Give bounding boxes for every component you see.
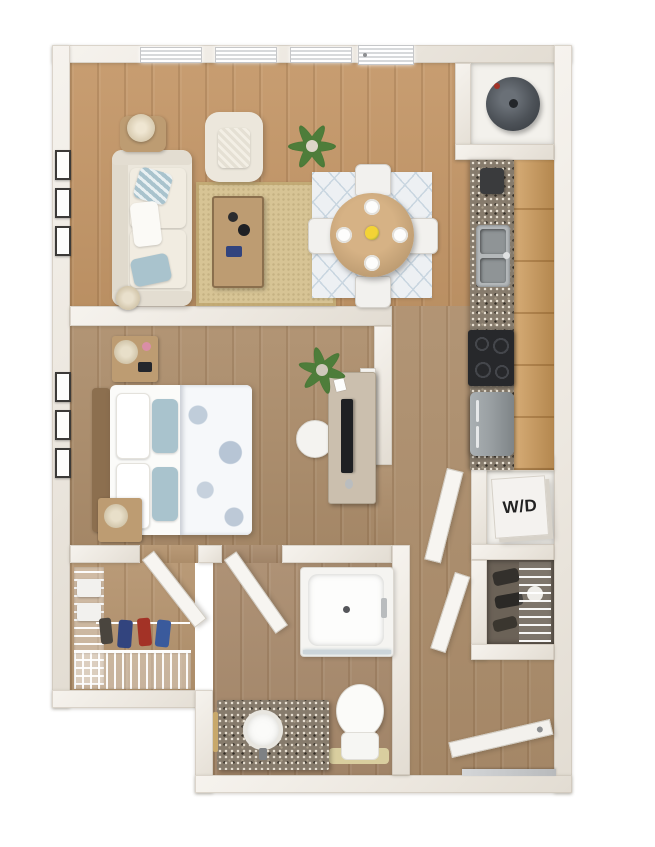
wall-bathroom-right xyxy=(392,545,410,775)
floor-lamp xyxy=(116,286,140,310)
stored-clothes-dark xyxy=(492,567,520,586)
bed-pillow-blue-1 xyxy=(152,399,178,453)
coffee-table-bowl xyxy=(228,212,238,222)
hanging-clothes-navy xyxy=(117,620,133,649)
coat-closet xyxy=(487,560,554,644)
centerpiece-flowers xyxy=(365,226,379,240)
vanity-towel xyxy=(213,712,218,752)
desk-mouse xyxy=(345,479,353,489)
refrigerator xyxy=(470,392,514,456)
nightstand-lamp xyxy=(114,340,138,364)
dining-table xyxy=(330,193,414,277)
wall-linen-bottom xyxy=(471,644,554,660)
fridge-handle xyxy=(476,400,479,422)
wall-bottom-closet xyxy=(52,690,213,708)
window-3 xyxy=(290,47,352,63)
kitchen-cabinets xyxy=(514,160,554,470)
nightstand-flowers xyxy=(142,342,151,351)
front-door-handle-icon xyxy=(536,726,543,733)
wall-art-living-2 xyxy=(55,188,71,218)
bed-pillow-blue-2 xyxy=(152,467,178,521)
wall-water-heater-bottom xyxy=(455,144,554,160)
armchair xyxy=(205,112,263,182)
hanging-clothes-blue xyxy=(155,619,172,647)
sofa-back xyxy=(112,150,128,306)
wall-bedroom-bottom-a xyxy=(70,545,140,563)
wall-art-bedroom-1 xyxy=(55,372,71,402)
shower xyxy=(300,567,394,657)
sofa xyxy=(112,150,192,306)
closet-shelf-bottom xyxy=(74,650,191,689)
sofa-throw-blanket xyxy=(129,200,162,247)
patio-door-handle-icon xyxy=(363,53,367,57)
bed-pillow-white-1 xyxy=(116,393,150,459)
vanity-sink xyxy=(243,710,283,750)
coffee-maker xyxy=(480,168,504,194)
dining-chair-north xyxy=(355,164,391,196)
coat-closet-wire-shelves xyxy=(519,562,551,642)
shower-glass xyxy=(303,650,391,654)
sink-faucet xyxy=(503,252,510,259)
patio-door xyxy=(358,45,414,65)
armchair-pillow xyxy=(218,128,250,168)
wall-right xyxy=(554,45,572,793)
place-setting-plate xyxy=(364,255,380,271)
wall-living-bedroom xyxy=(70,306,392,326)
toilet-base xyxy=(341,732,379,760)
closet-bin xyxy=(77,579,101,597)
washer-dryer-unit: W/D xyxy=(491,475,549,539)
wall-art-living-3 xyxy=(55,226,71,256)
coffee-table xyxy=(212,196,264,288)
fridge-handle xyxy=(476,426,479,448)
washer-dryer-label: W/D xyxy=(502,496,538,518)
bedroom-doorway xyxy=(374,465,392,545)
wall-bottom xyxy=(195,775,572,793)
vanity-faucet xyxy=(259,748,267,760)
living-room-plant xyxy=(288,122,336,170)
desk-monitor xyxy=(341,399,353,473)
wall-art-bedroom-2 xyxy=(55,410,71,440)
shower-drain xyxy=(343,606,350,613)
hanging-clothes-dark xyxy=(99,617,114,644)
nightstand-bottom xyxy=(98,498,142,542)
bathroom-vanity xyxy=(217,700,329,770)
place-setting-plate xyxy=(364,199,380,215)
hanging-clothes-red xyxy=(137,617,152,646)
toilet-lid xyxy=(336,684,384,738)
water-heater-pipe xyxy=(509,99,518,108)
water-heater xyxy=(486,77,540,131)
table-lamp xyxy=(127,114,155,142)
window-1 xyxy=(140,47,202,63)
bed-duvet xyxy=(180,385,252,535)
sofa-arm-top xyxy=(112,150,192,165)
sink-basin-top xyxy=(480,229,506,254)
plant-pot xyxy=(316,364,328,376)
plant-pot xyxy=(306,140,318,152)
coffee-table-vase xyxy=(238,224,250,236)
wall-art-living-1 xyxy=(55,150,71,180)
dining-chair-south xyxy=(355,276,391,308)
front-door-threshold xyxy=(462,769,556,776)
floor-plan-canvas: W/D xyxy=(0,0,655,847)
wall-bedroom-bottom-b xyxy=(198,545,222,563)
bedroom-plant xyxy=(296,344,348,396)
nightstand-lamp xyxy=(104,504,128,528)
wall-bedroom-bottom-c xyxy=(282,545,392,563)
place-setting-plate xyxy=(392,227,408,243)
shower-fixture xyxy=(381,598,387,618)
sink-basin-bottom xyxy=(480,258,506,283)
window-2 xyxy=(215,47,277,63)
coffee-table-blue-box xyxy=(226,246,242,257)
closet-bin xyxy=(77,603,101,621)
stove xyxy=(468,330,514,386)
toilet xyxy=(333,684,385,770)
nightstand-phone xyxy=(138,362,152,372)
place-setting-plate xyxy=(336,227,352,243)
wall-bedroom-right xyxy=(374,326,392,465)
stored-clothes-dark xyxy=(492,615,518,632)
wall-art-bedroom-3 xyxy=(55,448,71,478)
kitchen-sink xyxy=(476,225,510,287)
nightstand-top xyxy=(112,336,158,382)
wall-wd-bottom xyxy=(471,544,554,560)
water-heater-valve xyxy=(494,83,500,89)
